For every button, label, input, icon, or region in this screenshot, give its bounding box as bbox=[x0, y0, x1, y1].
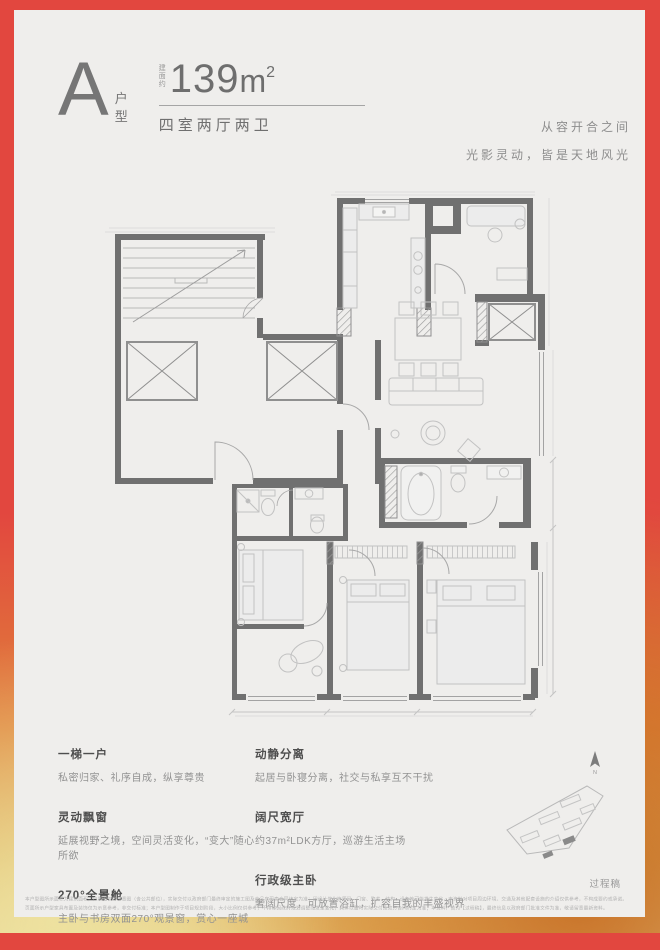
unit-header: A 户 型 建面约 139 m 2 四室两厅两卫 bbox=[58, 54, 365, 135]
disclaimer-line-2: 页面所示户型家具布置及装饰仅为示意参考，非交付标准；本户型图制作于项目规划阶段，… bbox=[25, 904, 633, 912]
feature-column-left: 一梯一户 私密归家、礼序自成，纵享尊贵 灵动飘窗 延展视野之境，空间灵活变化，“… bbox=[58, 746, 255, 950]
master-bedroom bbox=[427, 546, 525, 684]
bedroom-left bbox=[238, 544, 304, 626]
site-block: N bbox=[499, 744, 627, 872]
hall-baths bbox=[237, 488, 324, 533]
slogan-line-2: 光影灵动，皆是天地风光 bbox=[466, 142, 631, 170]
floor-plan bbox=[95, 190, 575, 720]
living-set bbox=[389, 378, 483, 461]
feature-item: 阔尺宽厅 约37m²LDK方厅，巡游生活主场 bbox=[255, 809, 465, 847]
feature-list: 一梯一户 私密归家、礼序自成，纵享尊贵 灵动飘窗 延展视野之境，空间灵活变化，“… bbox=[58, 746, 465, 950]
feature-column-right: 动静分离 起居与卧寝分离，社交与私享互不干扰 阔尺宽厅 约37m²LDK方厅，巡… bbox=[255, 746, 465, 950]
area-sup: 2 bbox=[266, 64, 275, 82]
area-unit: m bbox=[239, 67, 266, 96]
disclaimer-line-1: 本户型图所示面积为建筑面积，户型图仅为示意图（含公共部位），实际交付以政府部门最… bbox=[25, 896, 633, 904]
disclaimer: 本户型图所示面积为建筑面积，户型图仅为示意图（含公共部位），实际交付以政府部门最… bbox=[25, 896, 633, 912]
room-count-label: 四室两厅两卫 bbox=[159, 114, 365, 135]
north-arrow-icon: N bbox=[587, 750, 603, 776]
master-bath bbox=[401, 466, 521, 520]
header-divider bbox=[159, 105, 365, 106]
area-prefix: 建面约 bbox=[159, 65, 168, 89]
draft-watermark: 过程稿 bbox=[589, 876, 621, 890]
svg-text:N: N bbox=[593, 770, 597, 776]
kitchen bbox=[343, 204, 425, 308]
den-room bbox=[279, 636, 327, 676]
unit-type-letter: A bbox=[58, 54, 109, 126]
feature-item: 动静分离 起居与卧寝分离，社交与私享互不干扰 bbox=[255, 746, 465, 784]
unit-type-label: 户 型 bbox=[115, 90, 129, 125]
slogan: 从容开合之间 光影灵动，皆是天地风光 bbox=[466, 114, 631, 169]
site-plan-icon bbox=[503, 782, 613, 860]
staircase bbox=[123, 248, 255, 322]
study-room bbox=[467, 206, 527, 280]
bedroom-middle bbox=[335, 546, 409, 672]
feature-item: 灵动飘窗 延展视野之境，空间灵活变化，“变大”随心所欲 bbox=[58, 809, 255, 862]
poster-card: A 户 型 建面约 139 m 2 四室两厅两卫 从容开合之间 光影灵动，皆是天… bbox=[14, 10, 645, 917]
slogan-line-1: 从容开合之间 bbox=[466, 114, 631, 142]
unit-area-block: 建面约 139 m 2 四室两厅两卫 bbox=[159, 62, 365, 135]
area-value: 139 bbox=[170, 62, 240, 96]
feature-item: 一梯一户 私密归家、礼序自成，纵享尊贵 bbox=[58, 746, 255, 784]
